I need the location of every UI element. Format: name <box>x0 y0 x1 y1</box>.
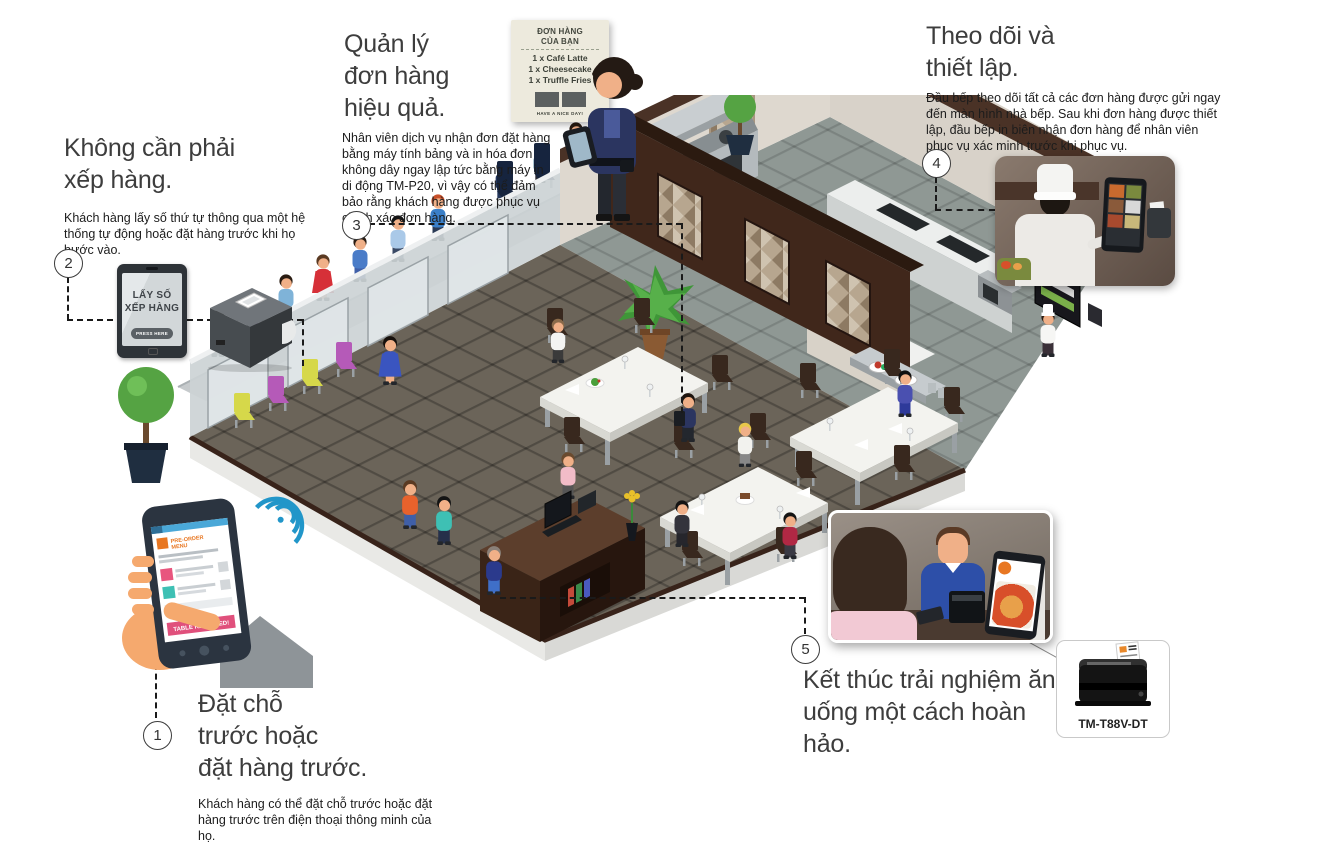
title-line: hảo. <box>803 728 1056 760</box>
title-line: trước hoặc <box>198 720 367 752</box>
phone: PRE-ORDER MENU TABLE RESERVED! <box>140 497 252 670</box>
food-dish <box>997 258 1031 280</box>
smartphone-in-hand: PRE-ORDER MENU TABLE RESERVED! <box>108 488 313 688</box>
kitchen-tablet <box>1101 177 1147 253</box>
title-line: thiết lập. <box>926 52 1054 84</box>
receipt-header: ĐƠN HÀNG <box>511 27 609 37</box>
connector-line <box>67 277 69 320</box>
pos-tablet <box>984 550 1046 640</box>
title-line: hiệu quả. <box>344 92 449 124</box>
step3-title: Quản lý đơn hàng hiệu quả. <box>344 28 449 124</box>
step5-title: Kết thúc trải nghiệm ăn uống một cách ho… <box>803 664 1056 760</box>
printer-product-card: TM-T88V-DT <box>1056 640 1170 738</box>
title-line: Theo dõi và <box>926 20 1054 52</box>
tablet-camera-dot <box>146 267 158 270</box>
step4-title: Theo dõi và thiết lập. <box>926 20 1054 84</box>
tm-printer-image <box>1057 641 1169 711</box>
step4-description: Đầu bếp theo dõi tất cả các đơn hàng đượ… <box>926 90 1224 154</box>
chef-hat <box>1034 192 1076 200</box>
step3-description: Nhân viên dịch vụ nhận đơn đặt hàng bằng… <box>342 130 554 226</box>
title-line: Quản lý <box>344 28 449 60</box>
kitchen-chef-inset <box>995 156 1175 286</box>
press-here-button: PRESS HERE <box>131 328 173 339</box>
customer-body <box>828 611 917 643</box>
title-line: xếp hàng. <box>64 164 235 196</box>
step1-description: Khách hàng có thể đặt chỗ trước hoặc đặt… <box>198 796 452 844</box>
waitress-figure <box>552 52 667 230</box>
title-line: đơn hàng <box>344 60 449 92</box>
receipt-header: CỦA BẠN <box>511 37 609 47</box>
queue-number-tablet: LẤY SỐ XẾP HÀNG PRESS HERE <box>117 264 187 358</box>
infographic-canvas: Không cần phải xếp hàng. Khách hàng lấy … <box>0 0 1338 864</box>
title-line: Không cần phải <box>64 132 235 164</box>
title-line: uống một cách hoàn <box>803 696 1056 728</box>
step2-description: Khách hàng lấy số thứ tự thông qua một h… <box>64 210 306 258</box>
step5-badge: 5 <box>791 635 820 664</box>
tablet-text: XẾP HÀNG <box>122 302 182 315</box>
step4-badge: 4 <box>922 149 951 178</box>
step1-badge: 1 <box>143 721 172 750</box>
cashier-face <box>938 533 968 565</box>
tablet-screen: LẤY SỐ XẾP HÀNG PRESS HERE <box>122 273 182 346</box>
queue-ticket-printer <box>196 280 304 372</box>
connector-line <box>681 223 683 413</box>
step2-title: Không cần phải xếp hàng. <box>64 132 235 196</box>
title-line: Đặt chỗ <box>198 688 367 720</box>
connector-line <box>935 209 995 211</box>
receipt-divider <box>521 49 599 50</box>
tablet-home-button <box>148 348 158 355</box>
title-line: đặt hàng trước. <box>198 752 367 784</box>
checkout-inset <box>828 510 1053 643</box>
connector-line <box>935 177 937 210</box>
title-line: Kết thúc trải nghiệm ăn <box>803 664 1056 696</box>
step3-badge: 3 <box>342 211 371 240</box>
app-logo <box>156 537 168 549</box>
tablet-text: LẤY SỐ <box>122 289 182 302</box>
step2-badge: 2 <box>54 249 83 278</box>
connector-line <box>804 597 806 634</box>
customer-hair <box>833 527 907 621</box>
topiary-outside <box>118 367 174 483</box>
connector-line <box>500 597 805 599</box>
kitchen-printer <box>1147 208 1171 238</box>
step1-title: Đặt chỗ trước hoặc đặt hàng trước. <box>198 688 367 784</box>
printer-model-label: TM-T88V-DT <box>1057 717 1169 731</box>
receipt-printer <box>949 591 985 623</box>
chef-hat <box>1037 164 1073 194</box>
wifi-icon <box>257 488 313 542</box>
